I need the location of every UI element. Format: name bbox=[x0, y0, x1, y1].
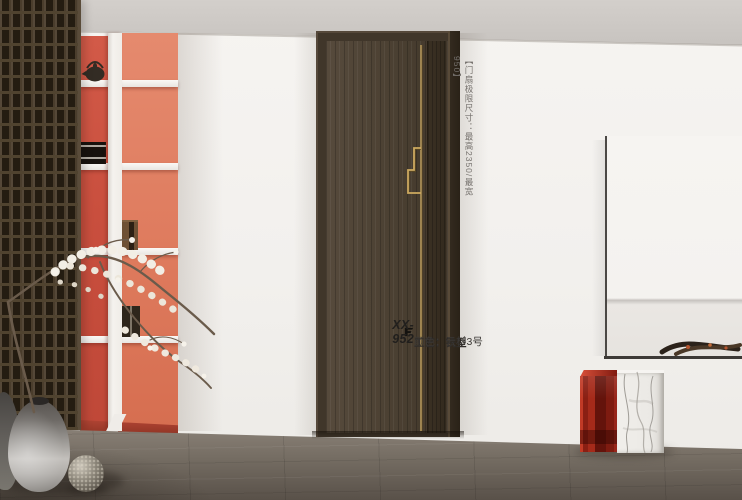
wall-shadow-left-of-door bbox=[294, 33, 318, 435]
product-model: XX-952 bbox=[392, 318, 414, 346]
driftwood-decor bbox=[658, 328, 742, 358]
door-bottom-shadow bbox=[312, 431, 464, 439]
product-color: 颜色：云杉3号 bbox=[414, 334, 483, 349]
blossom-branches bbox=[0, 222, 240, 422]
teapot-decor bbox=[80, 54, 110, 84]
interior-product-scene: 【门扇极限尺寸：最高2350/最宽950】 XX-952 工艺：铣型 颜色：云杉… bbox=[0, 0, 742, 500]
file-box-decor bbox=[78, 142, 106, 164]
door-spec-note: 【门扇极限尺寸：最高2350/最宽950】 bbox=[457, 56, 475, 216]
leaning-mirror bbox=[605, 136, 742, 358]
decor-sphere-texture bbox=[68, 455, 104, 492]
acrylic-stool-refraction bbox=[580, 430, 618, 444]
door-gold-inlay bbox=[318, 33, 450, 435]
door-handle bbox=[408, 148, 421, 193]
bookshelf-shelf bbox=[80, 163, 178, 170]
marble-veins bbox=[617, 370, 664, 453]
mirror-wall-shadow bbox=[592, 140, 606, 356]
